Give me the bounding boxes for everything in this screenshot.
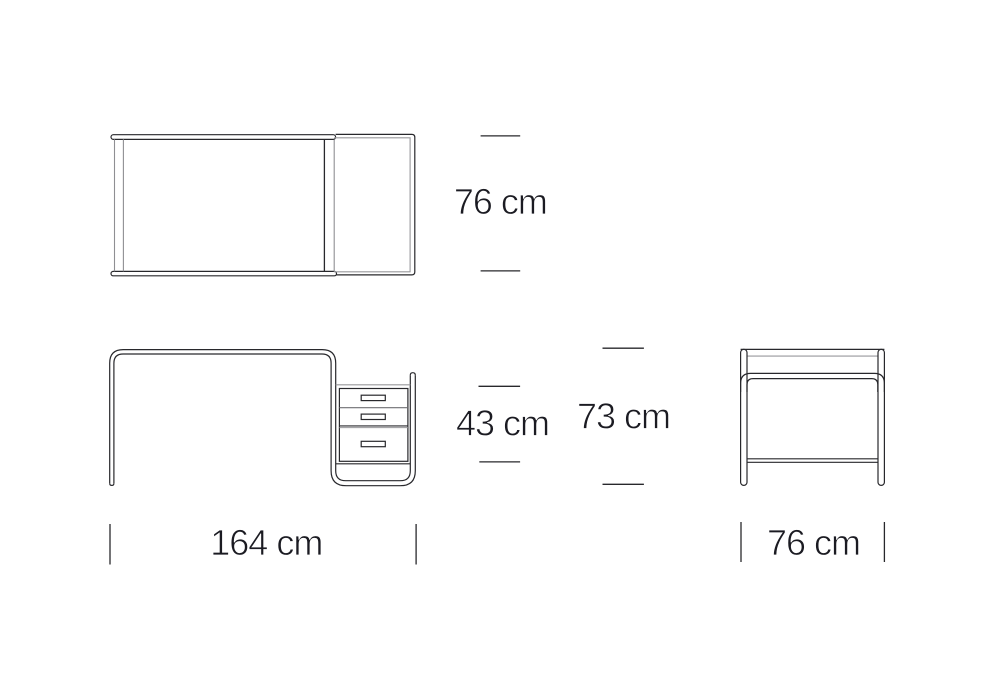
svg-text:76 cm: 76 cm: [454, 181, 547, 222]
svg-text:43 cm: 43 cm: [456, 402, 549, 443]
svg-text:73 cm: 73 cm: [577, 396, 670, 437]
svg-text:164 cm: 164 cm: [210, 522, 322, 563]
svg-text:76 cm: 76 cm: [767, 522, 860, 563]
